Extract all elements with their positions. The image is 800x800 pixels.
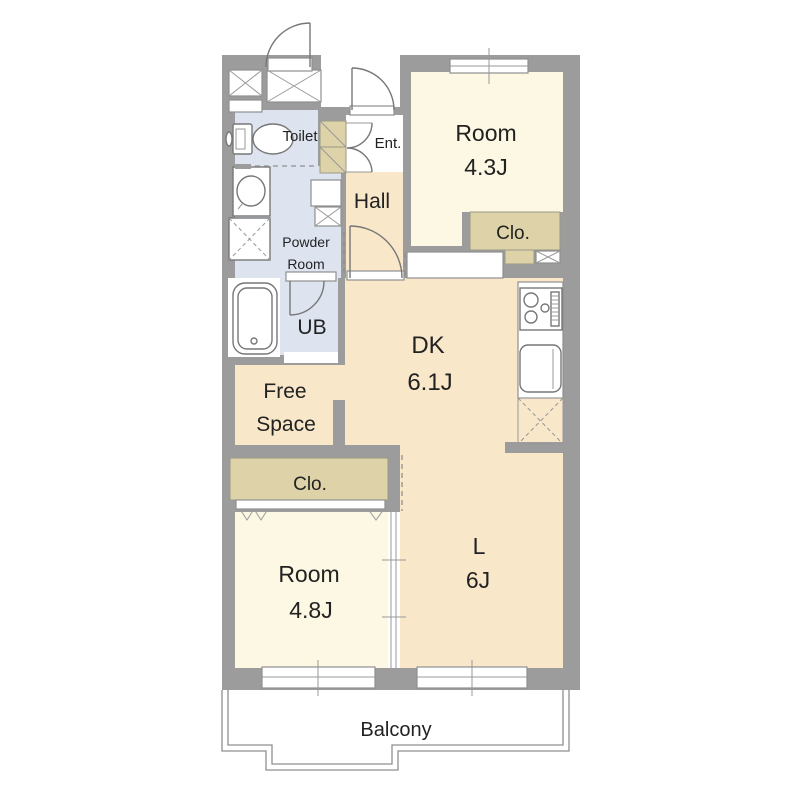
dk-label: DK (411, 332, 444, 359)
hall-counter-box (311, 180, 341, 206)
meter-box-shelf (229, 100, 262, 112)
closet-upper-label: Clo. (496, 223, 530, 244)
pipe-space-closet (536, 251, 560, 263)
floor-plan: Toilet Ent. Hall Powder Room Room 4.3J C… (0, 0, 800, 800)
bathtub (233, 283, 277, 354)
meter-box-door (266, 23, 312, 71)
room-43-label: Room (455, 120, 516, 146)
toilet-label: Toilet (282, 128, 318, 145)
wall-closet-lower-top (235, 445, 400, 458)
hall-label: Hall (354, 190, 390, 213)
entrance-recess (321, 40, 400, 107)
shoe-cabinet (320, 121, 346, 173)
free-space-label-1: Free (263, 380, 306, 403)
wall-stub-free-space (333, 400, 345, 448)
free-space-floor (235, 365, 346, 450)
living-floor (400, 450, 563, 668)
balcony-label: Balcony (360, 719, 431, 741)
free-space-label-2: Space (256, 413, 316, 436)
kitchen-sink (520, 345, 561, 392)
washbasin (233, 167, 270, 216)
partition-stub (235, 164, 251, 169)
unit-bath-step (284, 352, 338, 363)
closet-upper-tab (505, 250, 534, 264)
meter-box-small (229, 70, 262, 96)
unit-bath-label: UB (297, 316, 326, 339)
closet-lower-label: Clo. (293, 474, 327, 495)
room-43-area: 4.3J (464, 154, 507, 180)
floor-plan-page: Toilet Ent. Hall Powder Room Room 4.3J C… (0, 0, 800, 800)
room-43-sliding-door (407, 252, 503, 278)
room-48-label: Room (278, 561, 339, 587)
stove (520, 288, 562, 330)
room-48-floor (235, 512, 388, 668)
washing-machine-space (229, 218, 270, 260)
living-label: L (473, 533, 486, 559)
hall-floor (346, 172, 403, 278)
hall-pipe-space (315, 207, 341, 226)
powder-room-label-2: Room (287, 256, 324, 272)
powder-room-label-1: Powder (282, 234, 330, 250)
room-43-floor-lower (411, 212, 462, 246)
living-area: 6J (466, 567, 490, 593)
dk-area: 6.1J (407, 369, 452, 396)
room-48-area: 4.8J (289, 597, 332, 623)
entrance-label: Ent. (375, 135, 402, 152)
meter-box-large (267, 70, 321, 102)
